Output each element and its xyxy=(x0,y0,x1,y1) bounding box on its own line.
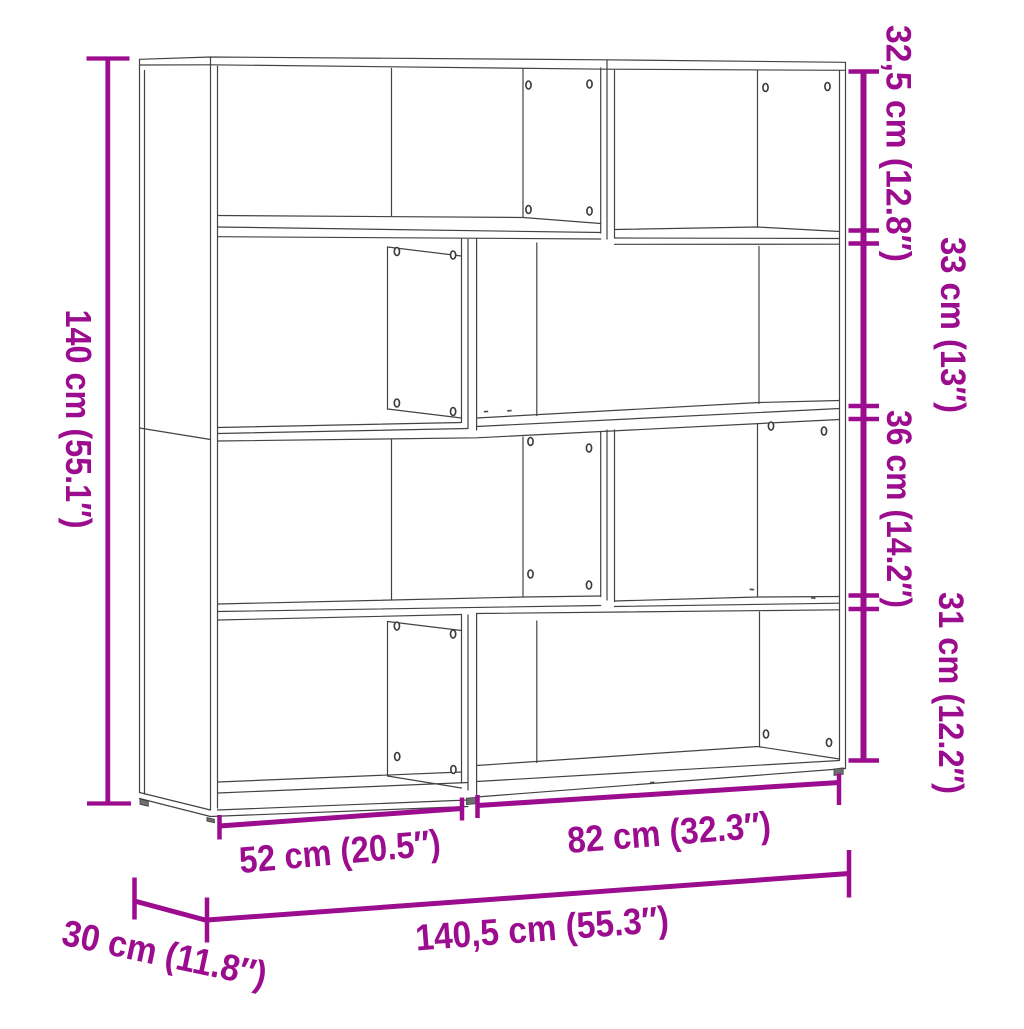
svg-text:33 cm (13″): 33 cm (13″) xyxy=(933,237,972,413)
svg-text:31 cm (12.2″): 31 cm (12.2″) xyxy=(931,592,970,794)
svg-text:32,5 cm (12.8″): 32,5 cm (12.8″) xyxy=(879,25,918,262)
svg-text:36 cm (14.2″): 36 cm (14.2″) xyxy=(879,410,918,608)
svg-text:140 cm (55.1″): 140 cm (55.1″) xyxy=(58,310,99,529)
